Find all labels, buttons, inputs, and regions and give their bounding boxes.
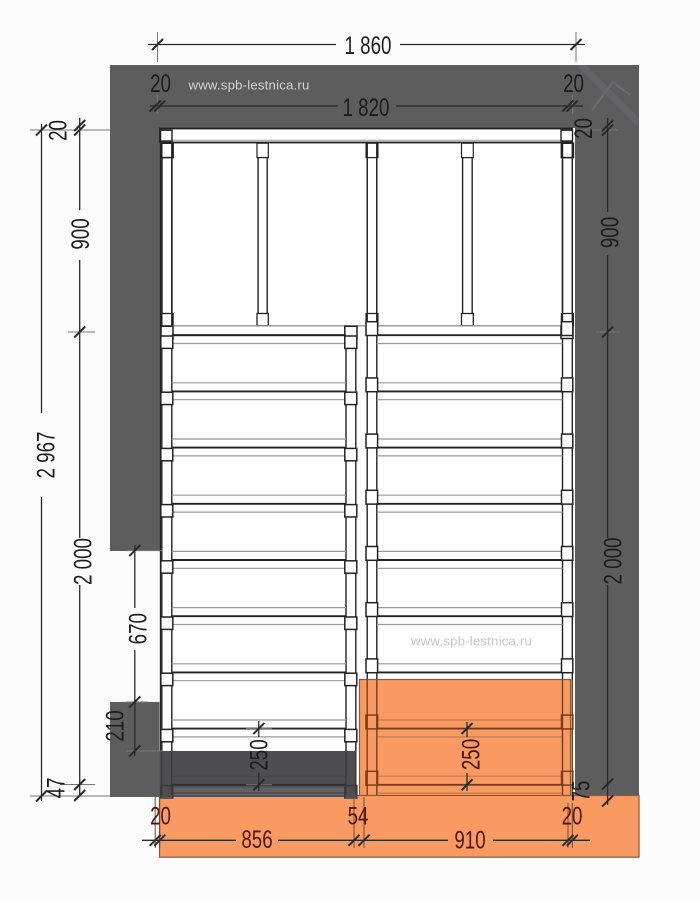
- svg-text:210: 210: [101, 710, 129, 741]
- svg-text:2 967: 2 967: [32, 432, 60, 479]
- svg-text:75: 75: [567, 781, 595, 802]
- svg-text:670: 670: [124, 613, 152, 644]
- svg-text:900: 900: [596, 217, 624, 248]
- svg-text:1 820: 1 820: [343, 93, 390, 121]
- svg-text:2 000: 2 000: [599, 538, 627, 585]
- svg-text:20: 20: [563, 69, 584, 97]
- svg-text:250: 250: [457, 739, 485, 770]
- svg-text:www.spb-lestnica.ru: www.spb-lestnica.ru: [410, 634, 532, 649]
- svg-text:www.spb-lestnica.ru: www.spb-lestnica.ru: [187, 78, 309, 93]
- svg-text:47: 47: [42, 778, 70, 799]
- svg-text:20: 20: [44, 120, 72, 141]
- svg-text:910: 910: [454, 826, 485, 854]
- svg-text:856: 856: [241, 825, 272, 853]
- svg-text:20: 20: [562, 802, 583, 830]
- svg-text:20: 20: [150, 802, 171, 830]
- svg-text:900: 900: [66, 218, 94, 249]
- svg-text:20: 20: [569, 118, 597, 139]
- svg-text:20: 20: [150, 69, 171, 97]
- svg-text:1 860: 1 860: [345, 31, 392, 59]
- svg-text:250: 250: [245, 739, 273, 770]
- svg-text:54: 54: [348, 802, 369, 830]
- svg-text:2 000: 2 000: [69, 538, 97, 585]
